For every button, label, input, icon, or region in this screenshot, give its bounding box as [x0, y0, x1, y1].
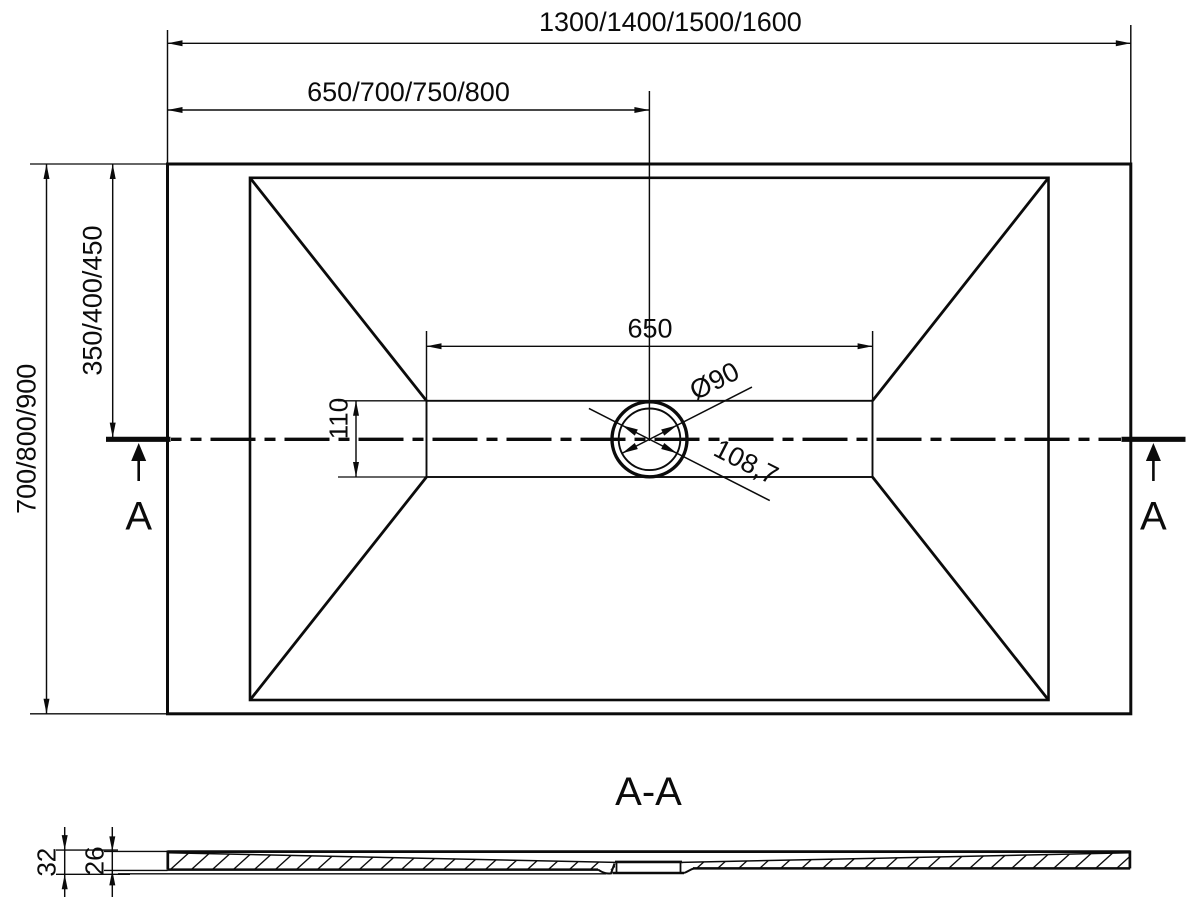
svg-text:A: A	[1140, 495, 1167, 539]
svg-text:A-A: A-A	[615, 770, 682, 814]
svg-text:700/800/900: 700/800/900	[12, 364, 42, 514]
svg-text:32: 32	[32, 848, 62, 877]
svg-text:1300/1400/1500/1600: 1300/1400/1500/1600	[539, 7, 802, 37]
svg-text:650/700/750/800: 650/700/750/800	[307, 77, 510, 107]
svg-text:26: 26	[80, 846, 110, 875]
svg-text:350/400/450: 350/400/450	[78, 226, 108, 376]
svg-text:A: A	[125, 495, 152, 539]
svg-text:110: 110	[324, 398, 354, 439]
